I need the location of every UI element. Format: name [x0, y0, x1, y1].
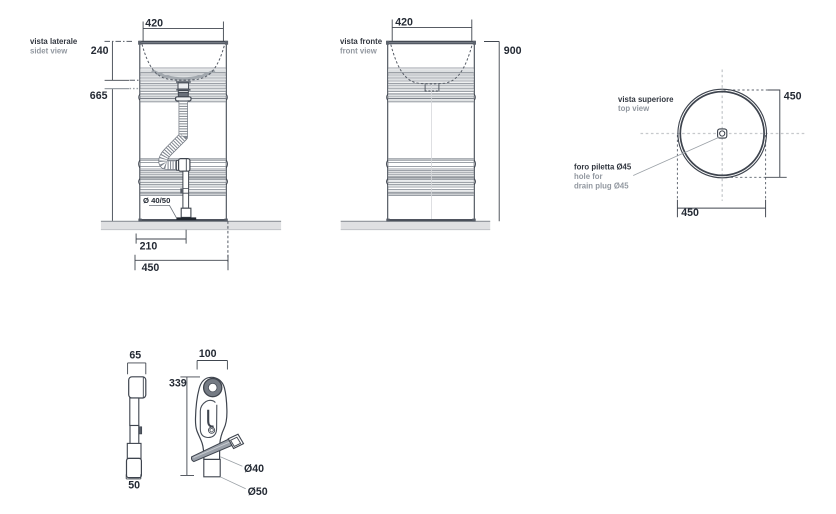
svg-text:420: 420 [395, 17, 413, 29]
svg-text:339: 339 [169, 377, 187, 389]
svg-text:210: 210 [140, 241, 158, 253]
svg-text:240: 240 [91, 45, 109, 57]
svg-text:sidet view: sidet view [30, 47, 68, 56]
svg-text:450: 450 [142, 262, 160, 274]
svg-text:vista superiore: vista superiore [618, 95, 674, 104]
svg-text:420: 420 [145, 17, 163, 29]
svg-text:65: 65 [129, 350, 141, 362]
svg-text:Ø 40/50: Ø 40/50 [143, 196, 170, 205]
svg-text:top view: top view [618, 104, 650, 113]
svg-text:foro piletta Ø45: foro piletta Ø45 [574, 162, 632, 171]
svg-text:665: 665 [90, 90, 108, 102]
svg-text:900: 900 [504, 45, 522, 57]
svg-text:front view: front view [340, 47, 378, 56]
svg-text:Ø50: Ø50 [248, 486, 268, 498]
svg-text:vista laterale: vista laterale [30, 37, 78, 46]
svg-text:Ø40: Ø40 [244, 463, 264, 475]
svg-text:100: 100 [199, 348, 217, 360]
svg-text:vista fronte: vista fronte [340, 37, 383, 46]
svg-text:50: 50 [128, 479, 140, 491]
svg-text:450: 450 [681, 207, 699, 219]
svg-text:drain plug Ø45: drain plug Ø45 [574, 182, 629, 191]
svg-text:450: 450 [784, 90, 802, 102]
svg-text:hole for: hole for [574, 172, 603, 181]
